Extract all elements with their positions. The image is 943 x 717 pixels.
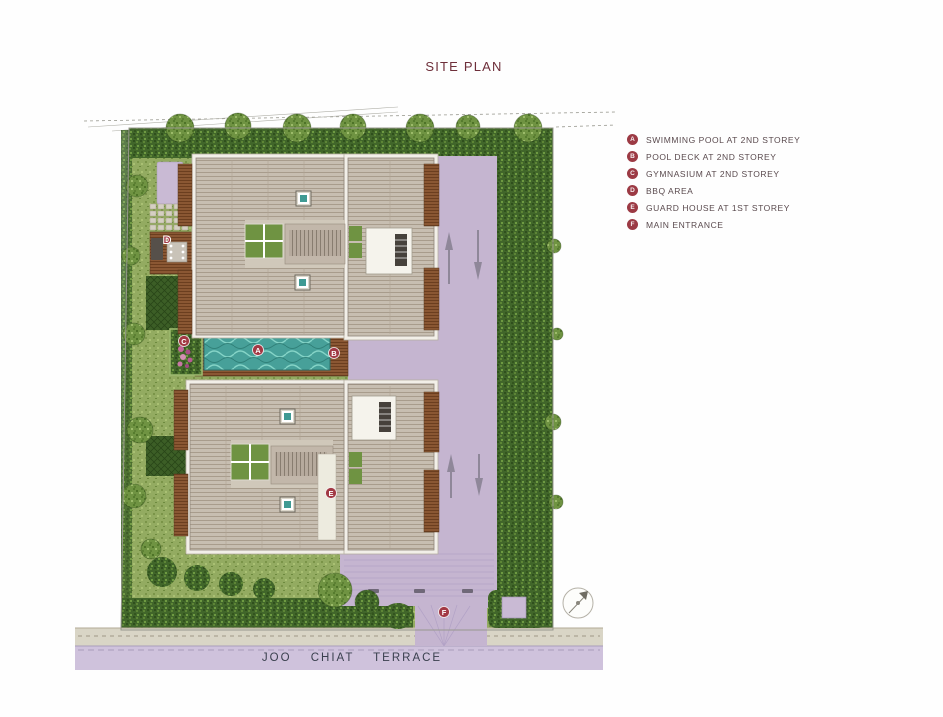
- stair-planter: [231, 444, 269, 480]
- road: JOO CHIAT TERRACE: [75, 628, 603, 670]
- marker-c-gymnasium: C: [179, 336, 190, 347]
- site-plan-page: SITE PLAN A SWIMMING POOL AT 2ND STOREY …: [0, 0, 943, 717]
- south-block: [174, 380, 439, 554]
- planter-box: [349, 469, 362, 484]
- svg-text:A: A: [255, 346, 261, 355]
- marker-b-pool-deck: B: [329, 348, 340, 359]
- entrance-hedge-left: [382, 603, 414, 629]
- marker-f-main-entrance: F: [439, 607, 450, 618]
- stair-treads: [289, 230, 341, 256]
- planter-box: [349, 452, 362, 467]
- site-plan-drawing: JOO CHIAT TERRACE: [0, 0, 943, 717]
- svg-text:C: C: [181, 337, 187, 346]
- marker-d-bbq-area: D: [164, 235, 171, 246]
- road-name: JOO CHIAT TERRACE: [262, 652, 442, 664]
- stair-core: [395, 234, 407, 266]
- svg-text:E: E: [328, 489, 333, 498]
- svg-text:D: D: [164, 235, 171, 246]
- right-hedge: [495, 128, 553, 630]
- stair-planter: [245, 224, 283, 258]
- entrance-pad: [502, 597, 526, 618]
- bbq-bench: [151, 238, 163, 260]
- north-arrow-compass: [563, 588, 593, 618]
- stair-core: [379, 402, 391, 432]
- planter-box: [349, 226, 362, 241]
- north-block: [178, 154, 439, 340]
- svg-text:B: B: [331, 349, 337, 358]
- marker-e-guard-house: E: [326, 488, 337, 499]
- sidewalk: [75, 628, 603, 646]
- marker-a-swimming-pool: A: [253, 345, 264, 356]
- planter-box: [349, 243, 362, 258]
- svg-text:F: F: [442, 608, 447, 617]
